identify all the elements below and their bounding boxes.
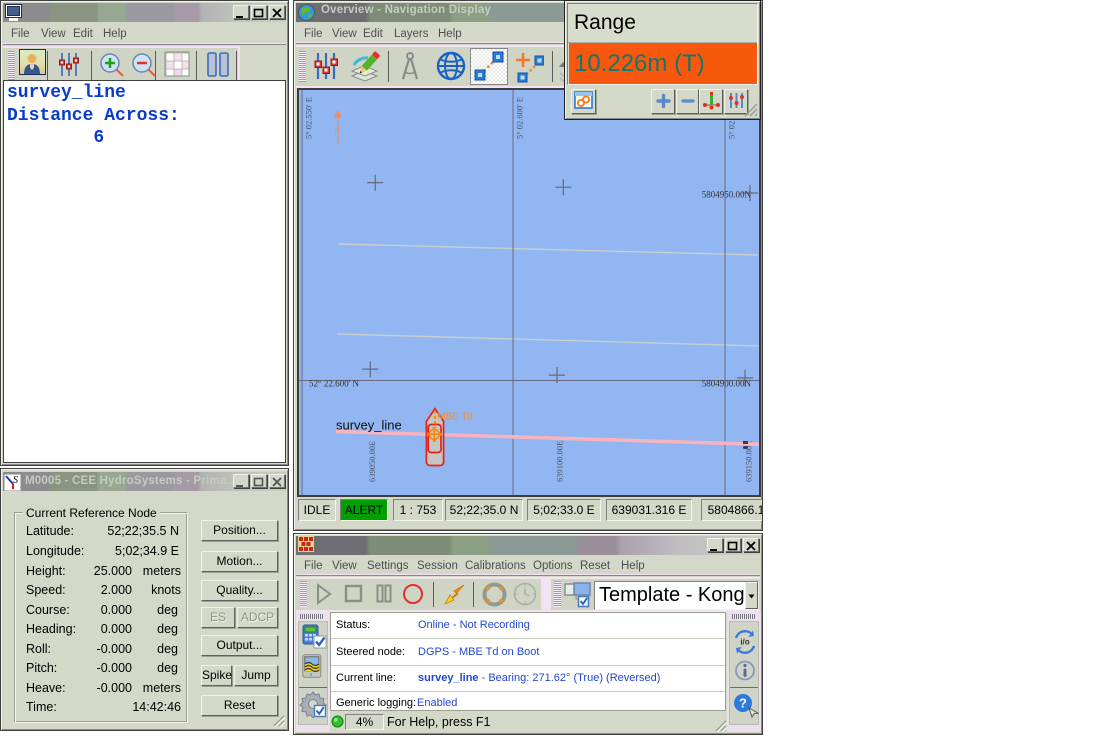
svg-text:5° 02.550' E: 5° 02.550' E (304, 97, 314, 139)
svg-text:639050.00E: 639050.00E (367, 441, 377, 482)
svg-text:5° 02.600' E: 5° 02.600' E (515, 97, 525, 139)
svg-text:5804900.00N: 5804900.00N (702, 379, 752, 389)
svg-text:MBE Td: MBE Td (437, 412, 473, 423)
svg-text:i/o: i/o (740, 638, 749, 647)
svg-text:639100.00E: 639100.00E (555, 441, 565, 482)
svg-text:S: S (13, 475, 18, 486)
svg-text:5804950.00N: 5804950.00N (702, 190, 752, 200)
svg-text:N: N (334, 126, 341, 136)
svg-text:survey_line: survey_line (336, 418, 402, 433)
svg-text:?: ? (739, 696, 747, 711)
svg-text:52° 22.600' N: 52° 22.600' N (309, 379, 359, 389)
